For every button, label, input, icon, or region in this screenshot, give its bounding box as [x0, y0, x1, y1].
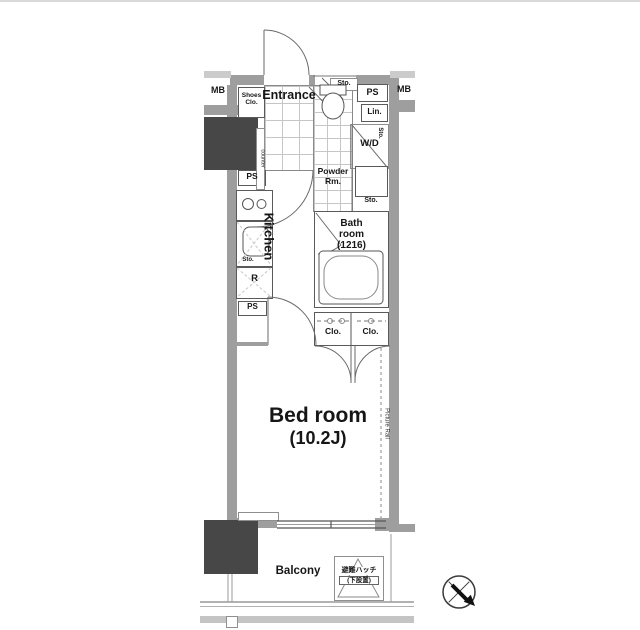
plan-linework: [0, 0, 640, 630]
powder-room-label: Powder Rm.: [312, 167, 354, 186]
storage-toilet-label: Sto.: [330, 80, 358, 88]
storage-powder-label: Sto.: [356, 197, 386, 205]
north-compass: [443, 576, 475, 608]
bathroom-line3: (1216): [314, 240, 389, 251]
storage-kitchen-label: Sto.: [235, 257, 261, 264]
refrigerator-label: R: [236, 274, 273, 285]
bedroom-size-label: (10.2J): [240, 428, 396, 448]
washer-dryer-label: W/D: [350, 139, 389, 150]
linen-label: Lin.: [361, 108, 388, 117]
shoes-closet-line1: Shoes: [238, 92, 265, 99]
bathroom-line1: Bath: [314, 218, 389, 229]
evacuation-hatch-line2: (下設置): [339, 576, 379, 585]
evacuation-hatch-line1: 避難ハッチ: [336, 567, 382, 575]
pipe-space-kitchen-bottom-label: PS: [238, 303, 267, 312]
bathroom-label: Bath room (1216): [314, 218, 389, 252]
entrance-label: Entrance: [262, 88, 316, 102]
window-lines: [277, 521, 386, 528]
powder-room-line2: Rm.: [312, 177, 354, 187]
floorplan-page: MB MB Shoes Clo. Entrance Sto. PS Lin. W…: [0, 0, 640, 630]
bedroom-name-label: Bed room: [240, 404, 396, 428]
closet-right-label: Clo.: [353, 327, 388, 337]
storage-wd-label: Sto.: [375, 122, 383, 144]
shoes-closet-label: Shoes Clo.: [238, 92, 265, 107]
meter-box-left-label: MB: [204, 85, 232, 95]
pipe-space-kitchen-top-label: PS: [238, 172, 266, 182]
closet-left-label: Clo.: [315, 327, 351, 337]
kitchen-label: Kitchen: [261, 205, 276, 269]
shoes-closet-line2: Clo.: [238, 99, 265, 106]
balcony-label: Balcony: [268, 565, 328, 578]
bathroom-line2: room: [314, 229, 389, 240]
pipe-space-top-label: PS: [357, 87, 388, 97]
toilet: [320, 85, 346, 119]
meter-box-right-label: MB: [392, 84, 416, 94]
picture-rail-label: Picture Rail: [381, 396, 390, 452]
bathtub: [319, 251, 383, 304]
